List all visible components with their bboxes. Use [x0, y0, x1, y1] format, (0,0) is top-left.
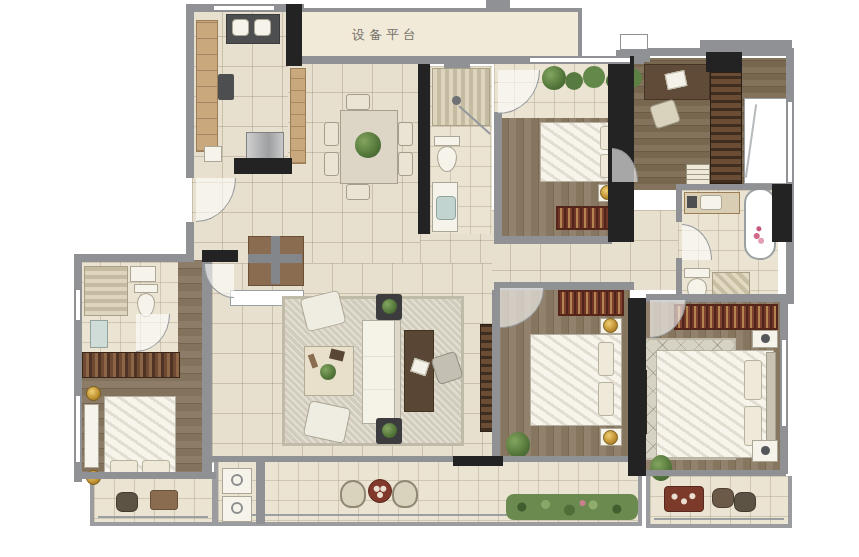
- wall-foyer-corner: [202, 250, 238, 262]
- bathroom-master-sink: [700, 195, 722, 210]
- balcony-flower-bed: [506, 494, 638, 520]
- balcony-left-basket: [150, 490, 178, 510]
- dining-chair-top: [346, 94, 370, 110]
- wall-study-step: [700, 40, 792, 48]
- toilet-master-tank: [684, 268, 710, 278]
- balcony-right-pouf-2: [734, 492, 756, 512]
- dryer-door: [231, 502, 243, 514]
- bedroom2-balcony-plant: [506, 432, 530, 458]
- bedroom2-pillow-2: [598, 382, 614, 416]
- wall-bathcommon-west: [418, 64, 430, 234]
- vanity-left: [130, 266, 156, 282]
- balcony-right-rail: [654, 518, 784, 520]
- wall-bathmaster-east: [772, 184, 792, 242]
- wall-study-top-block: [706, 52, 742, 72]
- toilet-left-tank: [134, 284, 158, 293]
- bathtub-water: [749, 194, 771, 254]
- wall-kitchen-west: [186, 4, 194, 178]
- wall-living-south: [212, 456, 494, 462]
- dining-chair-right-1: [398, 122, 413, 146]
- wall-bedroom3-south: [646, 470, 786, 476]
- bedroom3-rug-top: [674, 304, 778, 330]
- bedroom2-lamp-top: [603, 318, 618, 333]
- shower-common: [432, 68, 490, 126]
- bedroom4-lamp-top: [86, 386, 101, 401]
- wall-bathmaster-west-upper: [676, 184, 682, 222]
- wall-living-south-block: [453, 456, 503, 466]
- bedroom3-nightstand-bottom-decor: [761, 446, 770, 455]
- bedroom2-pillow-1: [598, 342, 614, 376]
- dining-chair-right-2: [398, 152, 413, 176]
- wall-bedroom2-west: [492, 290, 500, 462]
- dining-chair-left-1: [324, 122, 339, 146]
- balcony-center-chair-right: [392, 480, 418, 508]
- side-table-plant-bottom: [382, 423, 397, 438]
- window-bathroom-left: [74, 290, 82, 320]
- window-bedroom1: [530, 56, 630, 64]
- shower-head-common: [452, 96, 461, 105]
- washer-door: [231, 474, 243, 486]
- coffee-table-plant: [320, 364, 336, 380]
- window-kitchen: [214, 4, 274, 12]
- bedroom2-lamp-bottom: [603, 430, 618, 445]
- side-table-plant-top: [382, 299, 397, 314]
- wall-left-south: [80, 472, 216, 479]
- wall-bedroom2-south: [494, 456, 630, 462]
- dining-centerpiece-plant: [355, 132, 381, 158]
- cabinet-left-bath: [90, 320, 108, 348]
- wall-bedroom2-corner: [628, 452, 646, 476]
- balcony-right-pouf-1: [712, 488, 734, 508]
- wall-bedroom1-west: [494, 112, 502, 242]
- shower-left: [84, 266, 128, 316]
- vanity-common-sink: [436, 196, 456, 220]
- balcony-left-rail: [98, 516, 208, 518]
- dining-chair-bottom: [346, 184, 370, 200]
- kitchen-stove: [218, 74, 234, 100]
- wall-left-bedroom-east: [202, 260, 212, 478]
- dining-chair-left-2: [324, 152, 339, 176]
- shoe-cabinet-divider-v: [271, 236, 280, 284]
- toilet-common-tank: [434, 136, 460, 146]
- pillar-top: [486, 0, 510, 10]
- window-study-east: [786, 102, 794, 182]
- study-drawers: [686, 164, 710, 186]
- laundry-divider-wall: [256, 462, 265, 524]
- wardrobe-left: [82, 352, 180, 378]
- wall-bathmaster-west-lower: [676, 258, 682, 302]
- bedroom1-planter-1: [542, 66, 566, 90]
- kitchen-sink-basin-left: [232, 19, 249, 36]
- balcony-center-chair-left: [340, 480, 366, 508]
- balcony-right-tray-table: [664, 486, 704, 512]
- kitchen-sink-basin-right: [254, 19, 271, 36]
- wall-connector-left: [74, 254, 194, 262]
- equipment-platform-label: 设备平台: [352, 26, 420, 44]
- kitchen-counter: [196, 20, 218, 152]
- bedroom3-plant: [650, 455, 672, 481]
- balcony-left-pouf: [116, 492, 138, 512]
- window-bedroom4: [74, 396, 82, 462]
- wall-bathmaster-north: [678, 184, 778, 190]
- study-bookshelf: [710, 72, 742, 184]
- ac-platform-box: [620, 34, 648, 50]
- kitchen-pantry: [290, 68, 306, 164]
- bedroom2-rug: [558, 290, 624, 316]
- wall-bedroom2-3-divider: [628, 298, 646, 456]
- bedroom4-bench: [84, 404, 99, 468]
- kitchen-cabinet: [204, 146, 222, 162]
- bedroom3-nightstand-top-decor: [761, 334, 770, 343]
- bathroom-master-accessory: [687, 196, 697, 208]
- wall-kitchen-south: [234, 158, 292, 174]
- balcony-center-table: [368, 479, 392, 503]
- wall-kitchen-east: [286, 4, 302, 66]
- living-sofa-back: [394, 320, 401, 424]
- bedroom3-pillow-1: [744, 360, 762, 400]
- pillar-platform-mid: [444, 56, 470, 68]
- floor-plan: 设备平台: [0, 0, 859, 557]
- window-bedroom3-east: [780, 340, 788, 426]
- wall-corridor-north: [494, 236, 612, 244]
